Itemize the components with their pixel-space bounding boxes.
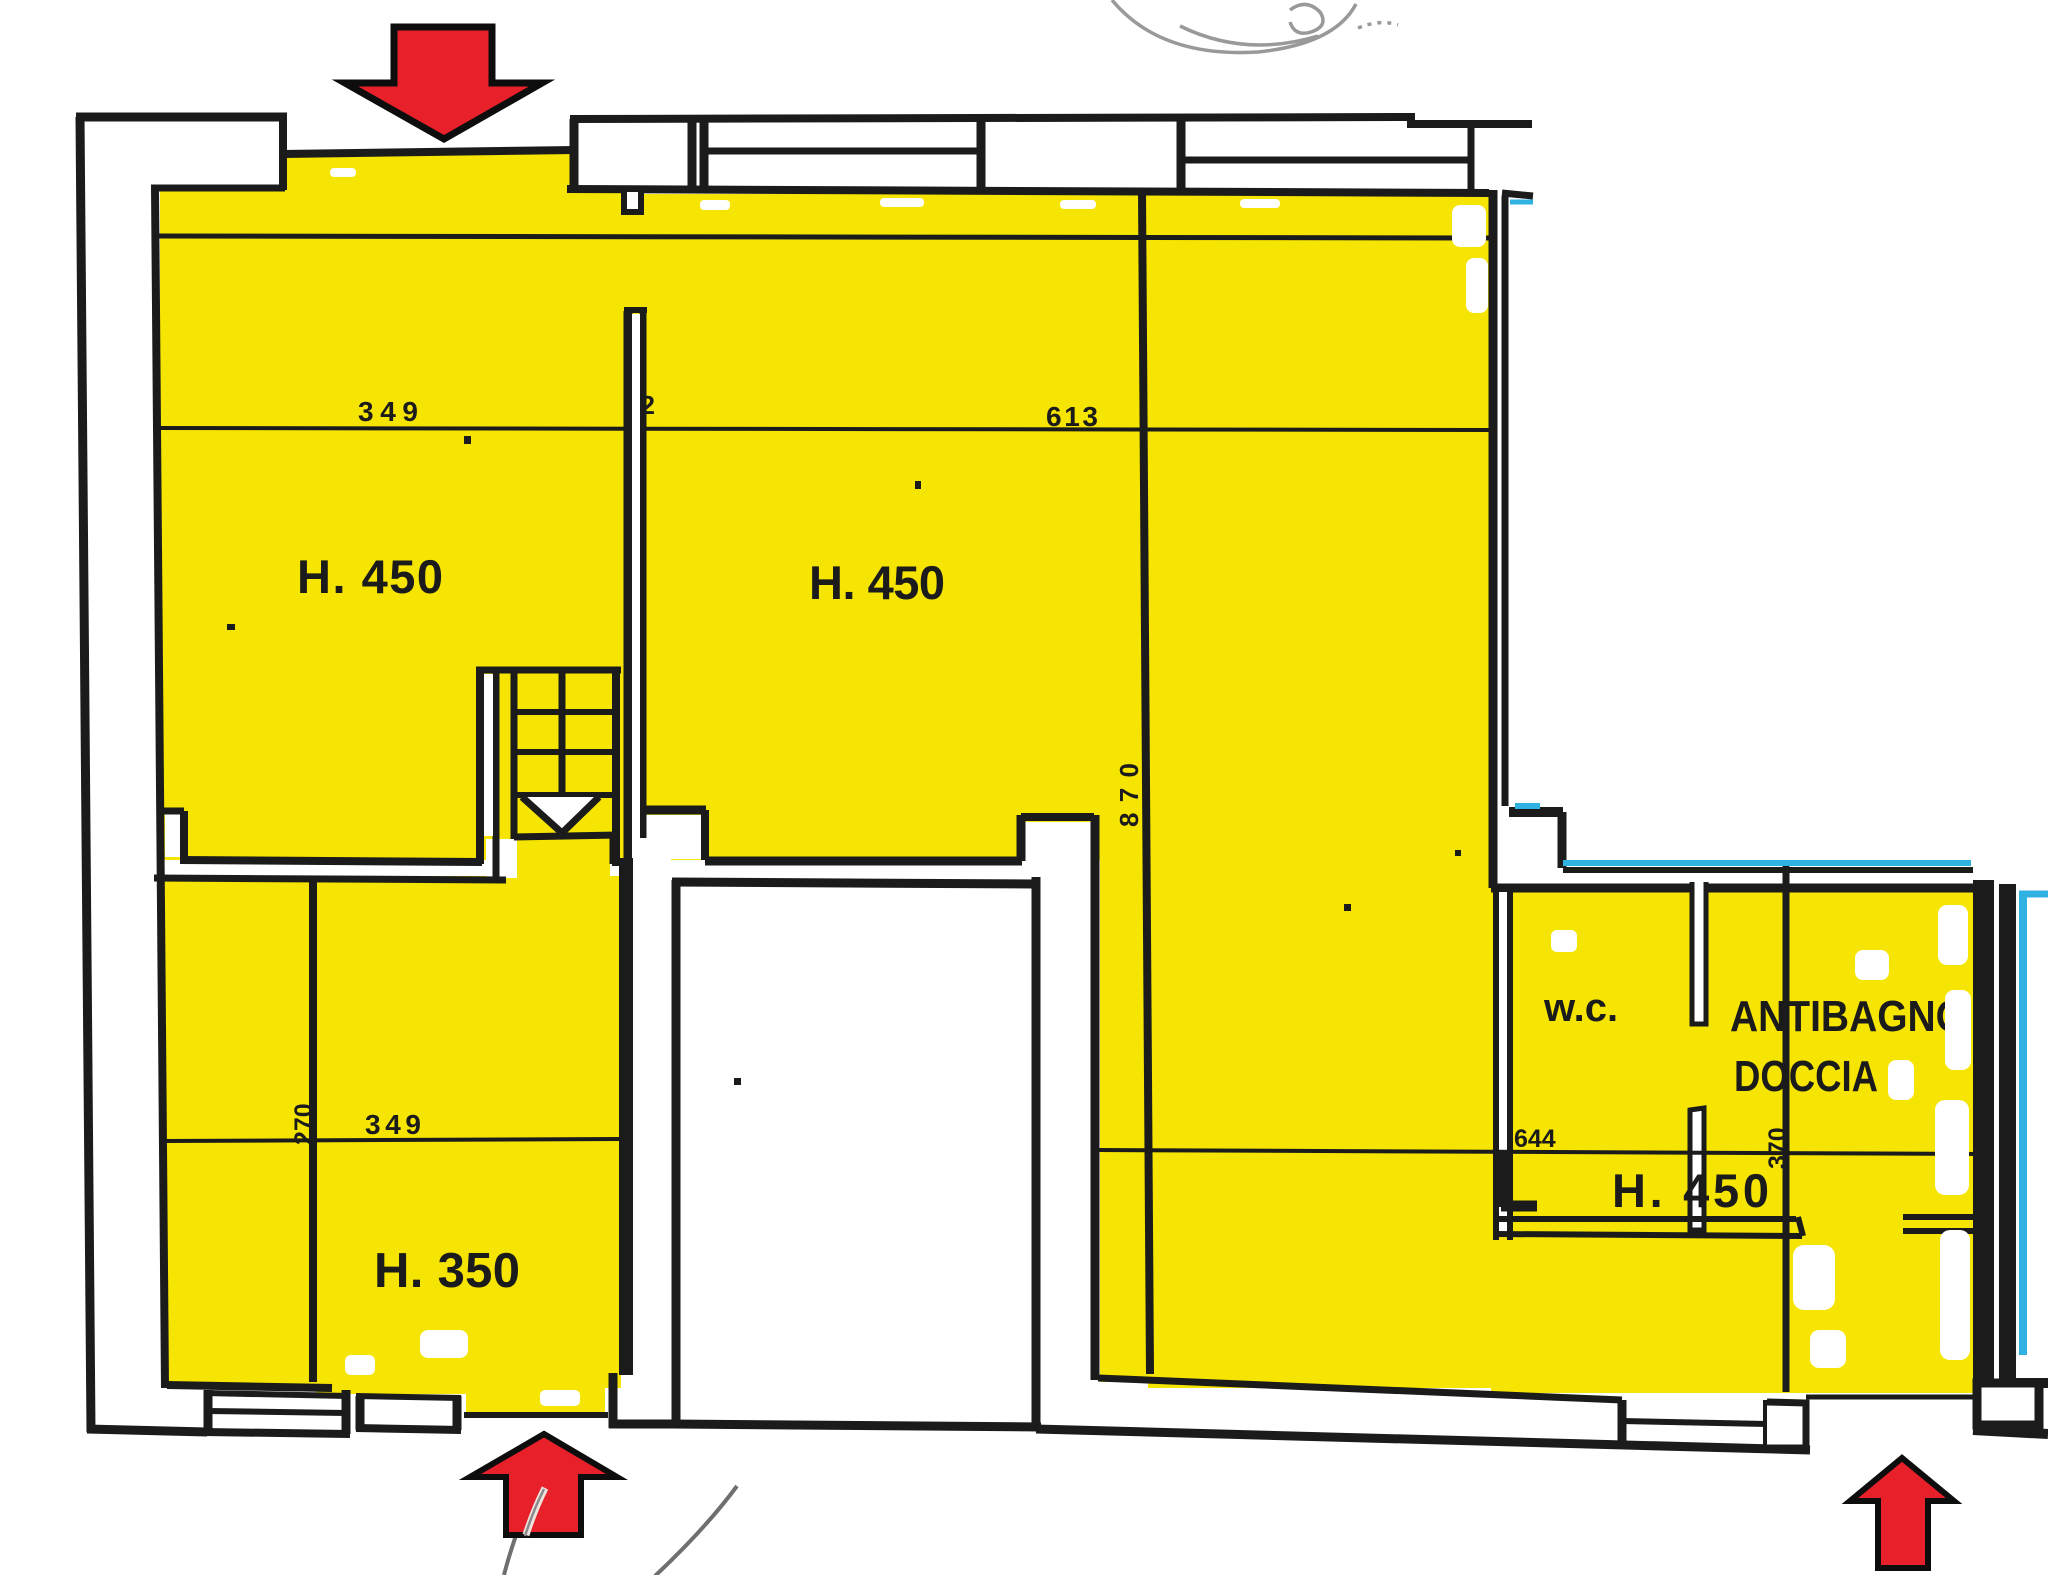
svg-text:370: 370 bbox=[1764, 1127, 1792, 1169]
svg-text:H. 350: H. 350 bbox=[374, 1244, 520, 1298]
svg-text:ANTIBAGNO: ANTIBAGNO bbox=[1730, 992, 1966, 1041]
svg-text:DOCCIA: DOCCIA bbox=[1734, 1052, 1878, 1101]
svg-text:870: 870 bbox=[1114, 763, 1144, 827]
svg-text:H. 450: H. 450 bbox=[297, 550, 443, 603]
svg-text:349: 349 bbox=[365, 1109, 421, 1140]
svg-text:270: 270 bbox=[290, 1103, 318, 1145]
svg-text:H. 450: H. 450 bbox=[809, 556, 945, 609]
svg-text:613: 613 bbox=[1046, 401, 1098, 432]
svg-text:644: 644 bbox=[1514, 1125, 1556, 1153]
svg-text:w.c.: w.c. bbox=[1543, 986, 1618, 1030]
svg-text:349: 349 bbox=[358, 396, 418, 427]
svg-text:H. 450: H. 450 bbox=[1612, 1164, 1769, 1217]
